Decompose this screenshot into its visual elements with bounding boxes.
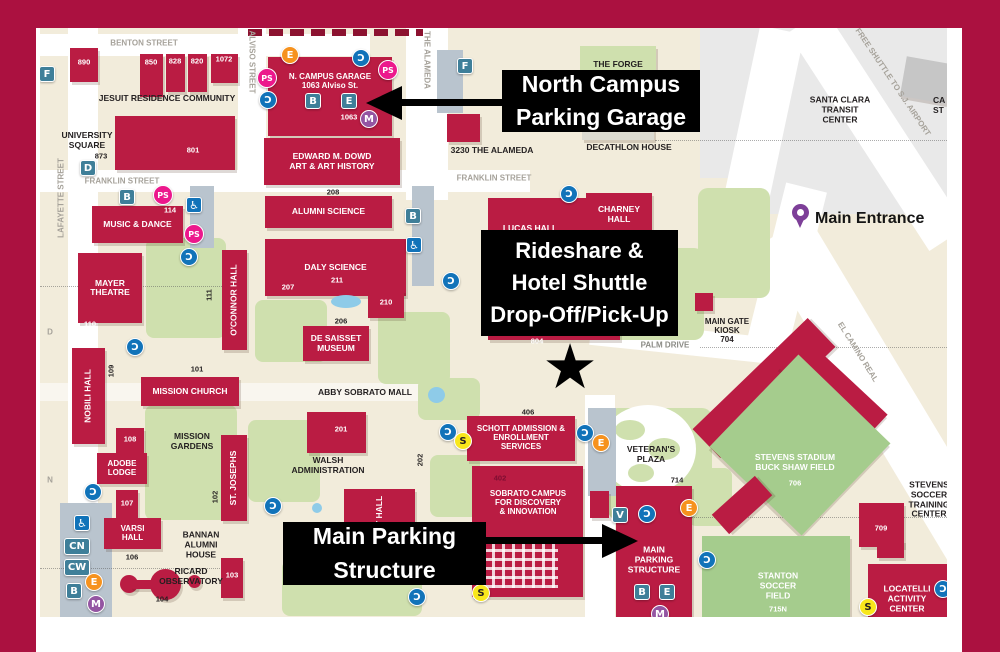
badge-B-icon: B	[66, 583, 82, 599]
campus-map: North Campus Parking Garage Rideshare & …	[40, 28, 947, 617]
ps-marker-icon: PS	[153, 185, 173, 205]
building-number: 706	[789, 479, 802, 488]
mission-church-label: MISSION CHURCH	[141, 377, 239, 406]
blue-marker-icon: Ɔ	[126, 338, 144, 356]
schott-admission: SCHOTT ADMISSION &ENROLLMENTSERVICES	[467, 416, 575, 461]
veterans-plaza-label: VETERAN'SPLAZA	[627, 445, 675, 465]
dowd-art-history-label: EDWARD M. DOWDART & ART HISTORY	[264, 138, 400, 185]
annotation-main-parking-structure: Main Parking Structure	[283, 522, 486, 585]
map-shape	[378, 312, 450, 384]
annotation-rideshare-dropoff: Rideshare & Hotel Shuttle Drop-Off/Pick-…	[481, 230, 678, 336]
building-number: 206	[335, 317, 348, 326]
st-josephs-label: ST. JOSEPHS	[191, 465, 277, 491]
building-3230	[447, 114, 480, 142]
accessible-icon: ♿	[406, 237, 422, 253]
building-number: 201	[335, 425, 348, 434]
blue-marker-icon: Ɔ	[638, 505, 656, 523]
building-number: 709	[875, 524, 888, 533]
badge-V-icon: V	[612, 507, 628, 523]
e-marker-icon: E	[281, 46, 299, 64]
badge-D-icon: D	[80, 160, 96, 176]
annotation-line: North Campus	[522, 68, 680, 101]
m-marker-icon: M	[651, 605, 669, 617]
water-feature	[312, 503, 322, 513]
blue-marker-icon: Ɔ	[934, 580, 947, 598]
nobili-hall: NOBILI HALL	[72, 348, 105, 444]
page-border-top	[0, 0, 1000, 28]
map-shape	[412, 186, 434, 286]
building-number: 211	[331, 276, 343, 285]
walsh-administration-label: WALSHADMINISTRATION	[291, 456, 364, 476]
university-square-label: UNIVERSITYSQUARE	[61, 131, 112, 151]
star-marker-icon: ★	[542, 336, 598, 398]
main-entrance-label: Main Entrance	[815, 210, 924, 228]
street-label: FRANKLIN STREET	[457, 174, 532, 183]
badge-B-icon: B	[634, 584, 650, 600]
blue-marker-icon: Ɔ	[442, 272, 460, 290]
palm-small-building	[590, 491, 609, 518]
s-marker-icon: S	[859, 598, 877, 616]
mayer-theatre: MAYERTHEATRE	[78, 253, 142, 323]
badge-CW-icon: CW	[64, 559, 90, 576]
street-label: THE ALAMEDA	[423, 31, 432, 89]
map-shape	[418, 378, 480, 420]
oconnor-hall: O'CONNOR HALL	[222, 250, 247, 350]
map-shape	[628, 464, 654, 482]
building-number: 801	[187, 146, 200, 155]
map-shape	[655, 140, 947, 141]
badge-CN-icon: CN	[64, 538, 90, 555]
badge-B-icon: B	[119, 189, 135, 205]
st-josephs: ST. JOSEPHS	[221, 435, 247, 521]
stanton-soccer-field-label: STANTONSOCCERFIELD	[758, 571, 798, 600]
badge-F-icon: F	[457, 58, 473, 74]
annotation-line: Rideshare &	[515, 235, 643, 267]
blue-marker-icon: Ɔ	[84, 483, 102, 501]
building-number: 820	[191, 57, 204, 66]
main-parking-arrowhead	[602, 524, 638, 558]
blue-marker-icon: Ɔ	[352, 49, 370, 67]
santa-clara-transit-center-label: SANTA CLARATRANSITCENTER	[810, 95, 870, 124]
building-number: 714	[671, 476, 684, 485]
mayer-theatre-label: MAYERTHEATRE	[78, 253, 142, 323]
alumni-science: ALUMNI SCIENCE	[265, 196, 392, 228]
street-label: D	[47, 328, 53, 337]
dowd-art-history: EDWARD M. DOWDART & ART HISTORY	[264, 138, 400, 185]
adobe-lodge-label: ADOBELODGE	[97, 453, 147, 484]
building-number: 828	[169, 57, 182, 66]
blue-marker-icon: Ɔ	[264, 497, 282, 515]
building-number: 104	[156, 595, 169, 604]
map-shape	[588, 408, 616, 496]
building-number: 715N	[769, 605, 787, 614]
de-saisset-museum-label: DE SAISSETMUSEUM	[303, 326, 369, 361]
blue-marker-icon: Ɔ	[259, 91, 277, 109]
badge-F-icon: F	[40, 66, 55, 82]
building-number: 109	[107, 365, 116, 378]
varsi-hall: VARSIHALL	[104, 518, 161, 549]
building-number: 1072	[216, 55, 233, 64]
building-number: 114	[164, 206, 176, 215]
building-number: 107	[121, 499, 134, 508]
water-feature	[331, 295, 361, 308]
building-number: 850	[145, 58, 158, 67]
main-entrance-pin-icon	[792, 204, 809, 221]
blue-marker-icon: Ɔ	[180, 248, 198, 266]
building-number: 873	[95, 152, 108, 161]
north-garage-arrowhead	[366, 86, 402, 120]
north-garage-arrow-line	[400, 99, 504, 106]
building-number: 103	[226, 571, 239, 580]
building-number: 106	[126, 553, 139, 562]
main-gate-kiosk-label: MAIN GATEKIOSK704	[705, 317, 749, 345]
blue-marker-icon: Ɔ	[576, 424, 594, 442]
stevens-soccer-training-center-label: STEVENSSOCCERTRAININGCENTER	[908, 480, 947, 519]
ricard-observatory-label: RICARDOBSERVATORY	[159, 567, 223, 587]
building-number: 110	[84, 320, 96, 329]
building-number: 406	[522, 408, 535, 417]
oconnor-hall-label: O'CONNOR HALL	[185, 288, 285, 313]
adobe-lodge: ADOBELODGE	[97, 453, 147, 484]
street-label: LAFAYETTE STREET	[57, 158, 66, 238]
nobili-hall-label: NOBILI HALL	[41, 380, 137, 413]
annotation-line: Structure	[333, 554, 435, 587]
blue-marker-icon: Ɔ	[408, 588, 426, 606]
accessible-icon: ♿	[74, 515, 90, 531]
e-marker-icon: E	[85, 573, 103, 591]
accessible-icon: ♿	[186, 197, 202, 213]
building-number: 890	[78, 58, 91, 67]
page-border-right	[962, 0, 1000, 652]
s-marker-icon: S	[454, 432, 472, 450]
ps-marker-icon: PS	[378, 60, 398, 80]
caltrain-station-clipped-label: CAST	[933, 96, 945, 116]
jesuit-residence-community-label: JESUIT RESIDENCE COMMUNITY	[99, 94, 236, 104]
abby-sobrato-mall-label: ABBY SOBRATO MALL	[318, 388, 412, 398]
building-number: 402	[494, 474, 507, 483]
annotation-line: Main Parking	[313, 520, 456, 553]
stevens-stadium-label: STEVENS STADIUMBUCK SHAW FIELD	[755, 453, 835, 473]
decathlon-house-label: DECATHLON HOUSE	[586, 143, 671, 153]
building-709-wing	[877, 540, 904, 558]
3230-the-alameda-label: 3230 THE ALAMEDA	[451, 146, 534, 156]
main-gate-kiosk	[695, 293, 713, 311]
building-number: 208	[327, 188, 340, 197]
street-label: N	[47, 476, 53, 485]
varsi-hall-label: VARSIHALL	[104, 518, 161, 549]
blue-marker-icon: Ɔ	[698, 551, 716, 569]
blue-marker-icon: Ɔ	[560, 185, 578, 203]
schott-admission-label: SCHOTT ADMISSION &ENROLLMENTSERVICES	[467, 416, 575, 461]
mission-church: MISSION CHURCH	[141, 377, 239, 406]
building-801	[115, 116, 235, 170]
building-number: 202	[416, 454, 425, 467]
e-marker-icon: E	[592, 434, 610, 452]
ps-marker-icon: PS	[184, 224, 204, 244]
street-label: FRANKLIN STREET	[85, 177, 160, 186]
e-marker-icon: E	[680, 499, 698, 517]
main-parking-arrow-line	[486, 537, 606, 544]
badge-B-icon: B	[405, 208, 421, 224]
building-number: 207	[282, 283, 295, 292]
annotation-line: Drop-Off/Pick-Up	[490, 299, 668, 331]
annotation-line: Hotel Shuttle	[512, 267, 648, 299]
map-shape	[482, 540, 558, 588]
alumni-science-label: ALUMNI SCIENCE	[265, 196, 392, 228]
badge-E-icon: E	[341, 93, 357, 109]
building-number: 210	[380, 298, 393, 307]
building-number: 108	[124, 435, 137, 444]
map-shape	[698, 188, 770, 298]
street-label: ALVISO STREET	[248, 31, 257, 94]
street-label: BENTON STREET	[110, 39, 177, 48]
s-marker-icon: S	[472, 584, 490, 602]
badge-B-icon: B	[305, 93, 321, 109]
m-marker-icon: M	[87, 595, 105, 613]
badge-E-icon: E	[659, 584, 675, 600]
building-number: 102	[211, 491, 220, 504]
page-border-left	[0, 0, 36, 652]
de-saisset-museum: DE SAISSETMUSEUM	[303, 326, 369, 361]
building-number: 111	[205, 289, 214, 301]
ps-marker-icon: PS	[257, 68, 277, 88]
water-feature	[428, 387, 445, 403]
locatelli-activity-center-label: LOCATELLIACTIVITYCENTER	[883, 584, 930, 613]
sobrato-campus-label: SOBRATO CAMPUSFOR DISCOVERY& INNOVATION	[490, 489, 566, 517]
building-number: 1063	[341, 113, 358, 122]
street-label: PALM DRIVE	[641, 341, 690, 350]
mission-gardens-label: MISSIONGARDENS	[171, 432, 214, 452]
annotation-line: Parking Garage	[516, 101, 686, 134]
building-number: 101	[191, 365, 204, 374]
n-campus-garage-label: N. CAMPUS GARAGE1063 Alviso St.	[289, 72, 371, 90]
bannan-alumni-house-label: BANNANALUMNIHOUSE	[183, 530, 220, 559]
annotation-north-campus-parking-garage: North Campus Parking Garage	[502, 70, 700, 132]
map-shape	[248, 29, 423, 36]
map-shape	[615, 420, 645, 440]
